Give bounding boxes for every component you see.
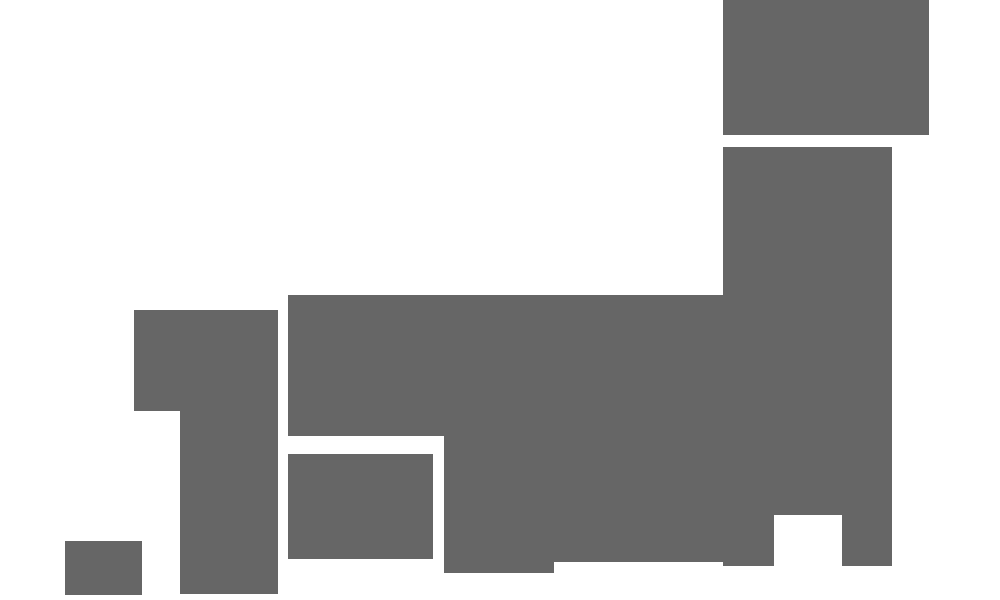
map-block-izu-stub [723, 515, 774, 566]
map-block-shikoku [288, 454, 433, 559]
map-block-central-honshu [288, 295, 723, 436]
map-block-hokkaido [723, 0, 929, 135]
map-block-boso-stub [842, 515, 892, 566]
map-block-chugoku [134, 310, 278, 411]
map-canvas [0, 0, 1000, 600]
map-block-chubu-south [444, 436, 554, 573]
map-block-southwest-island [65, 541, 142, 595]
map-block-tohoku-kanto [723, 147, 892, 515]
map-block-kyushu [180, 411, 278, 594]
map-block-tokai [554, 436, 723, 562]
